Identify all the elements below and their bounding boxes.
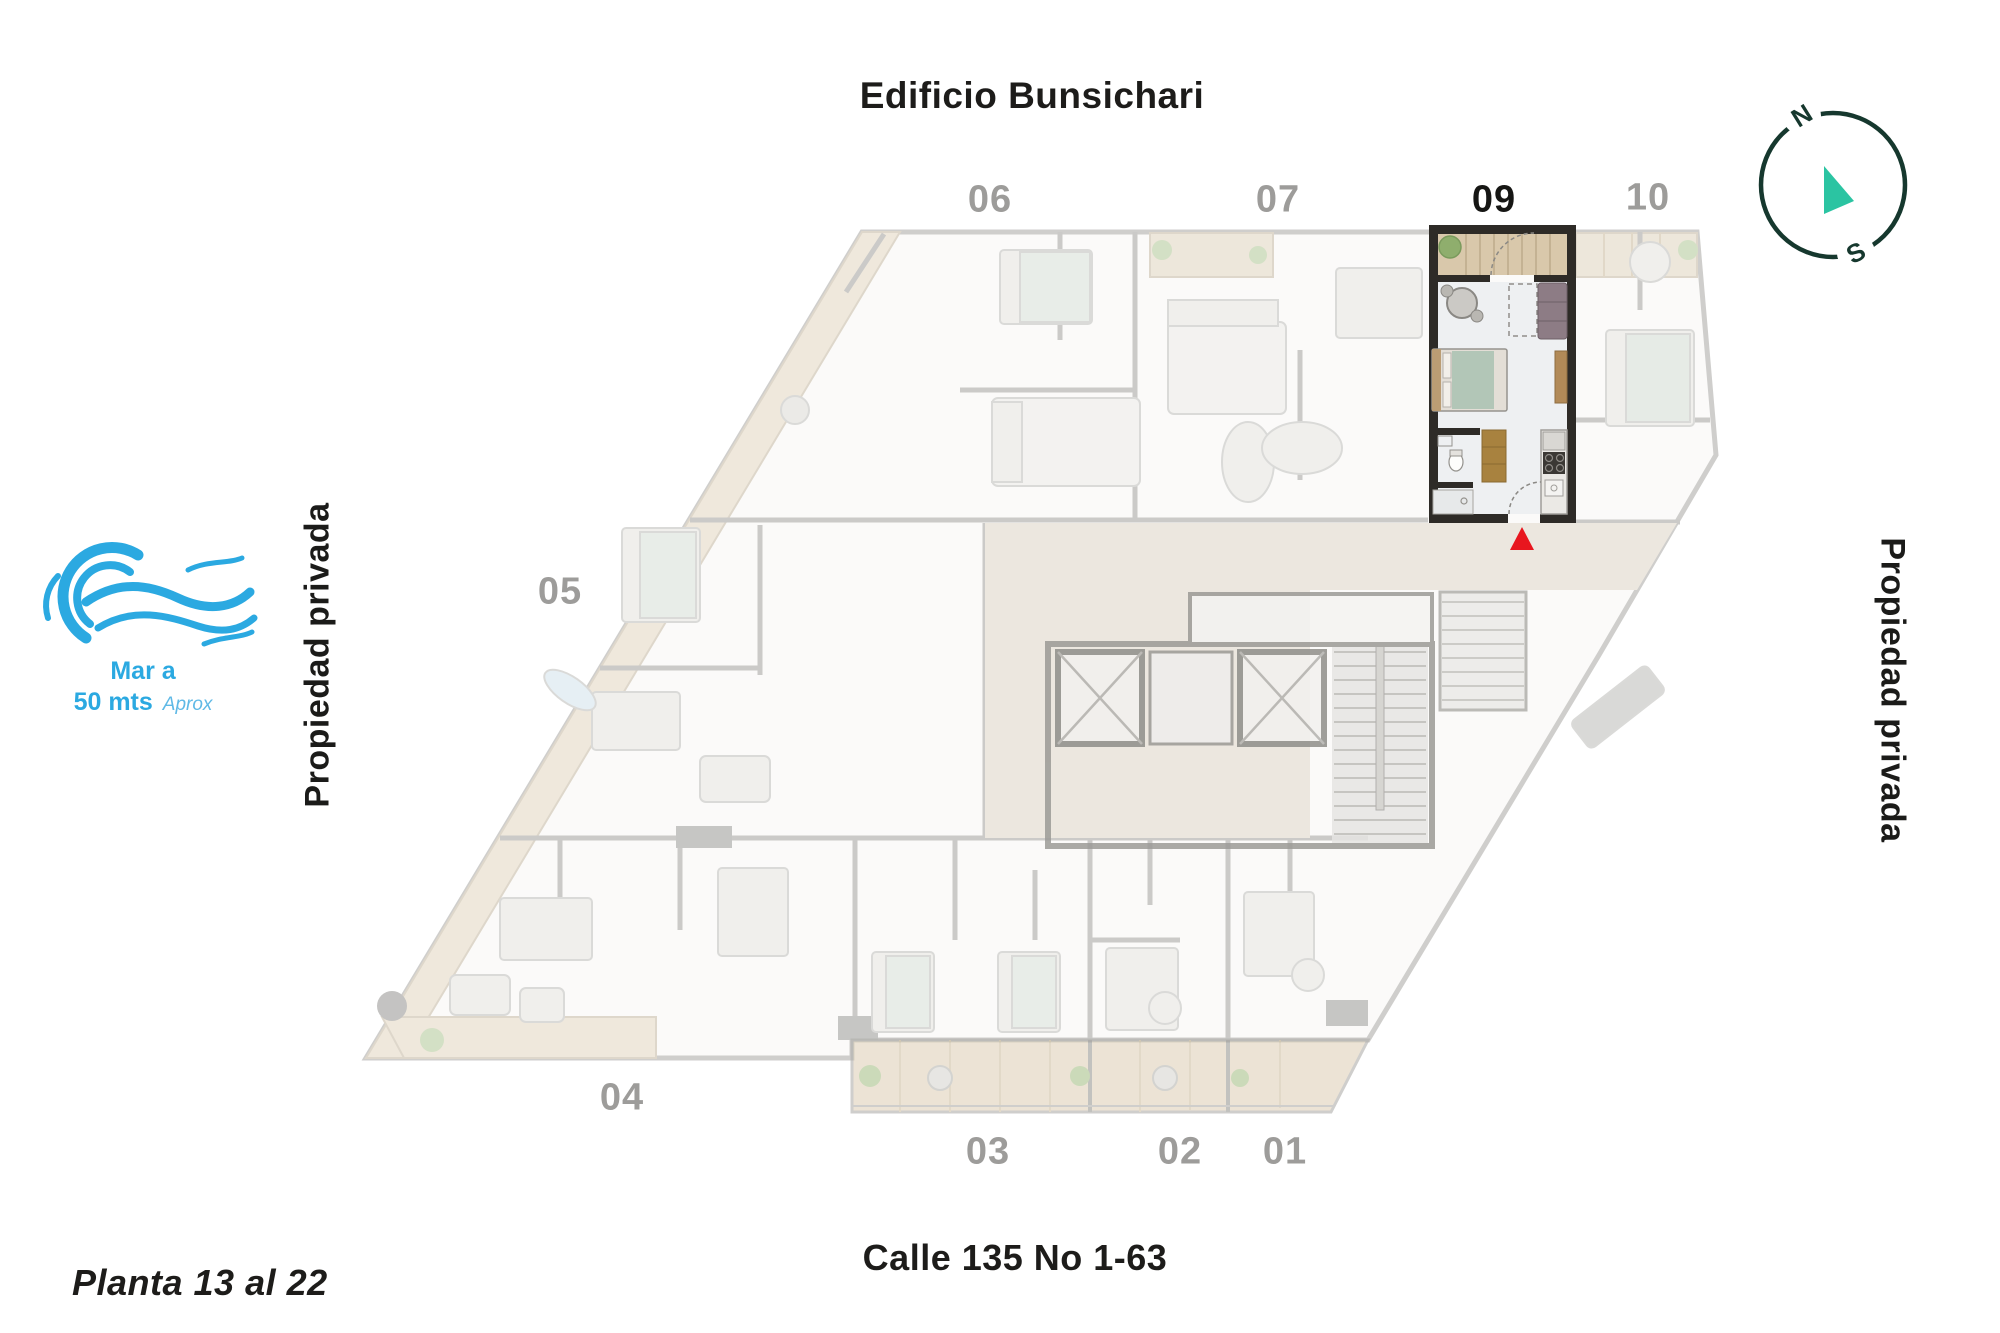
sea-distance-line1: Mar a xyxy=(28,657,258,686)
compass-rose-icon xyxy=(1748,100,1918,270)
property-label-right: Propiedad privada xyxy=(1873,537,1912,842)
unit-label-04: 04 xyxy=(600,1077,644,1120)
sea-distance-line2: 50 mts xyxy=(74,688,153,716)
lower-balcony xyxy=(852,1040,1368,1112)
unit-label-01: 01 xyxy=(1263,1131,1307,1174)
unit-label-05: 05 xyxy=(538,571,582,614)
unit-09-highlight xyxy=(1429,225,1576,523)
sea-indicator: Mar a 50 mtsAprox xyxy=(28,540,258,700)
floor-plan-page: Edificio Bunsichari 06 07 09 10 05 04 03… xyxy=(0,0,2000,1333)
unit-label-02: 02 xyxy=(1158,1131,1202,1174)
unit-label-03: 03 xyxy=(966,1131,1010,1174)
unit-label-09: 09 xyxy=(1472,179,1516,222)
floor-range-label: Planta 13 al 22 xyxy=(72,1262,328,1304)
sea-distance-approx: Aprox xyxy=(163,694,213,715)
unit-label-07: 07 xyxy=(1256,179,1300,222)
unit-label-10: 10 xyxy=(1626,177,1670,220)
compass: N S xyxy=(1748,100,1918,270)
sea-waves-icon xyxy=(28,540,258,652)
building-title: Edificio Bunsichari xyxy=(860,75,1205,117)
compass-pointer xyxy=(1824,166,1854,214)
street-label: Calle 135 No 1-63 xyxy=(863,1237,1168,1279)
property-label-left: Propiedad privada xyxy=(299,502,338,807)
unit-label-06: 06 xyxy=(968,179,1012,222)
